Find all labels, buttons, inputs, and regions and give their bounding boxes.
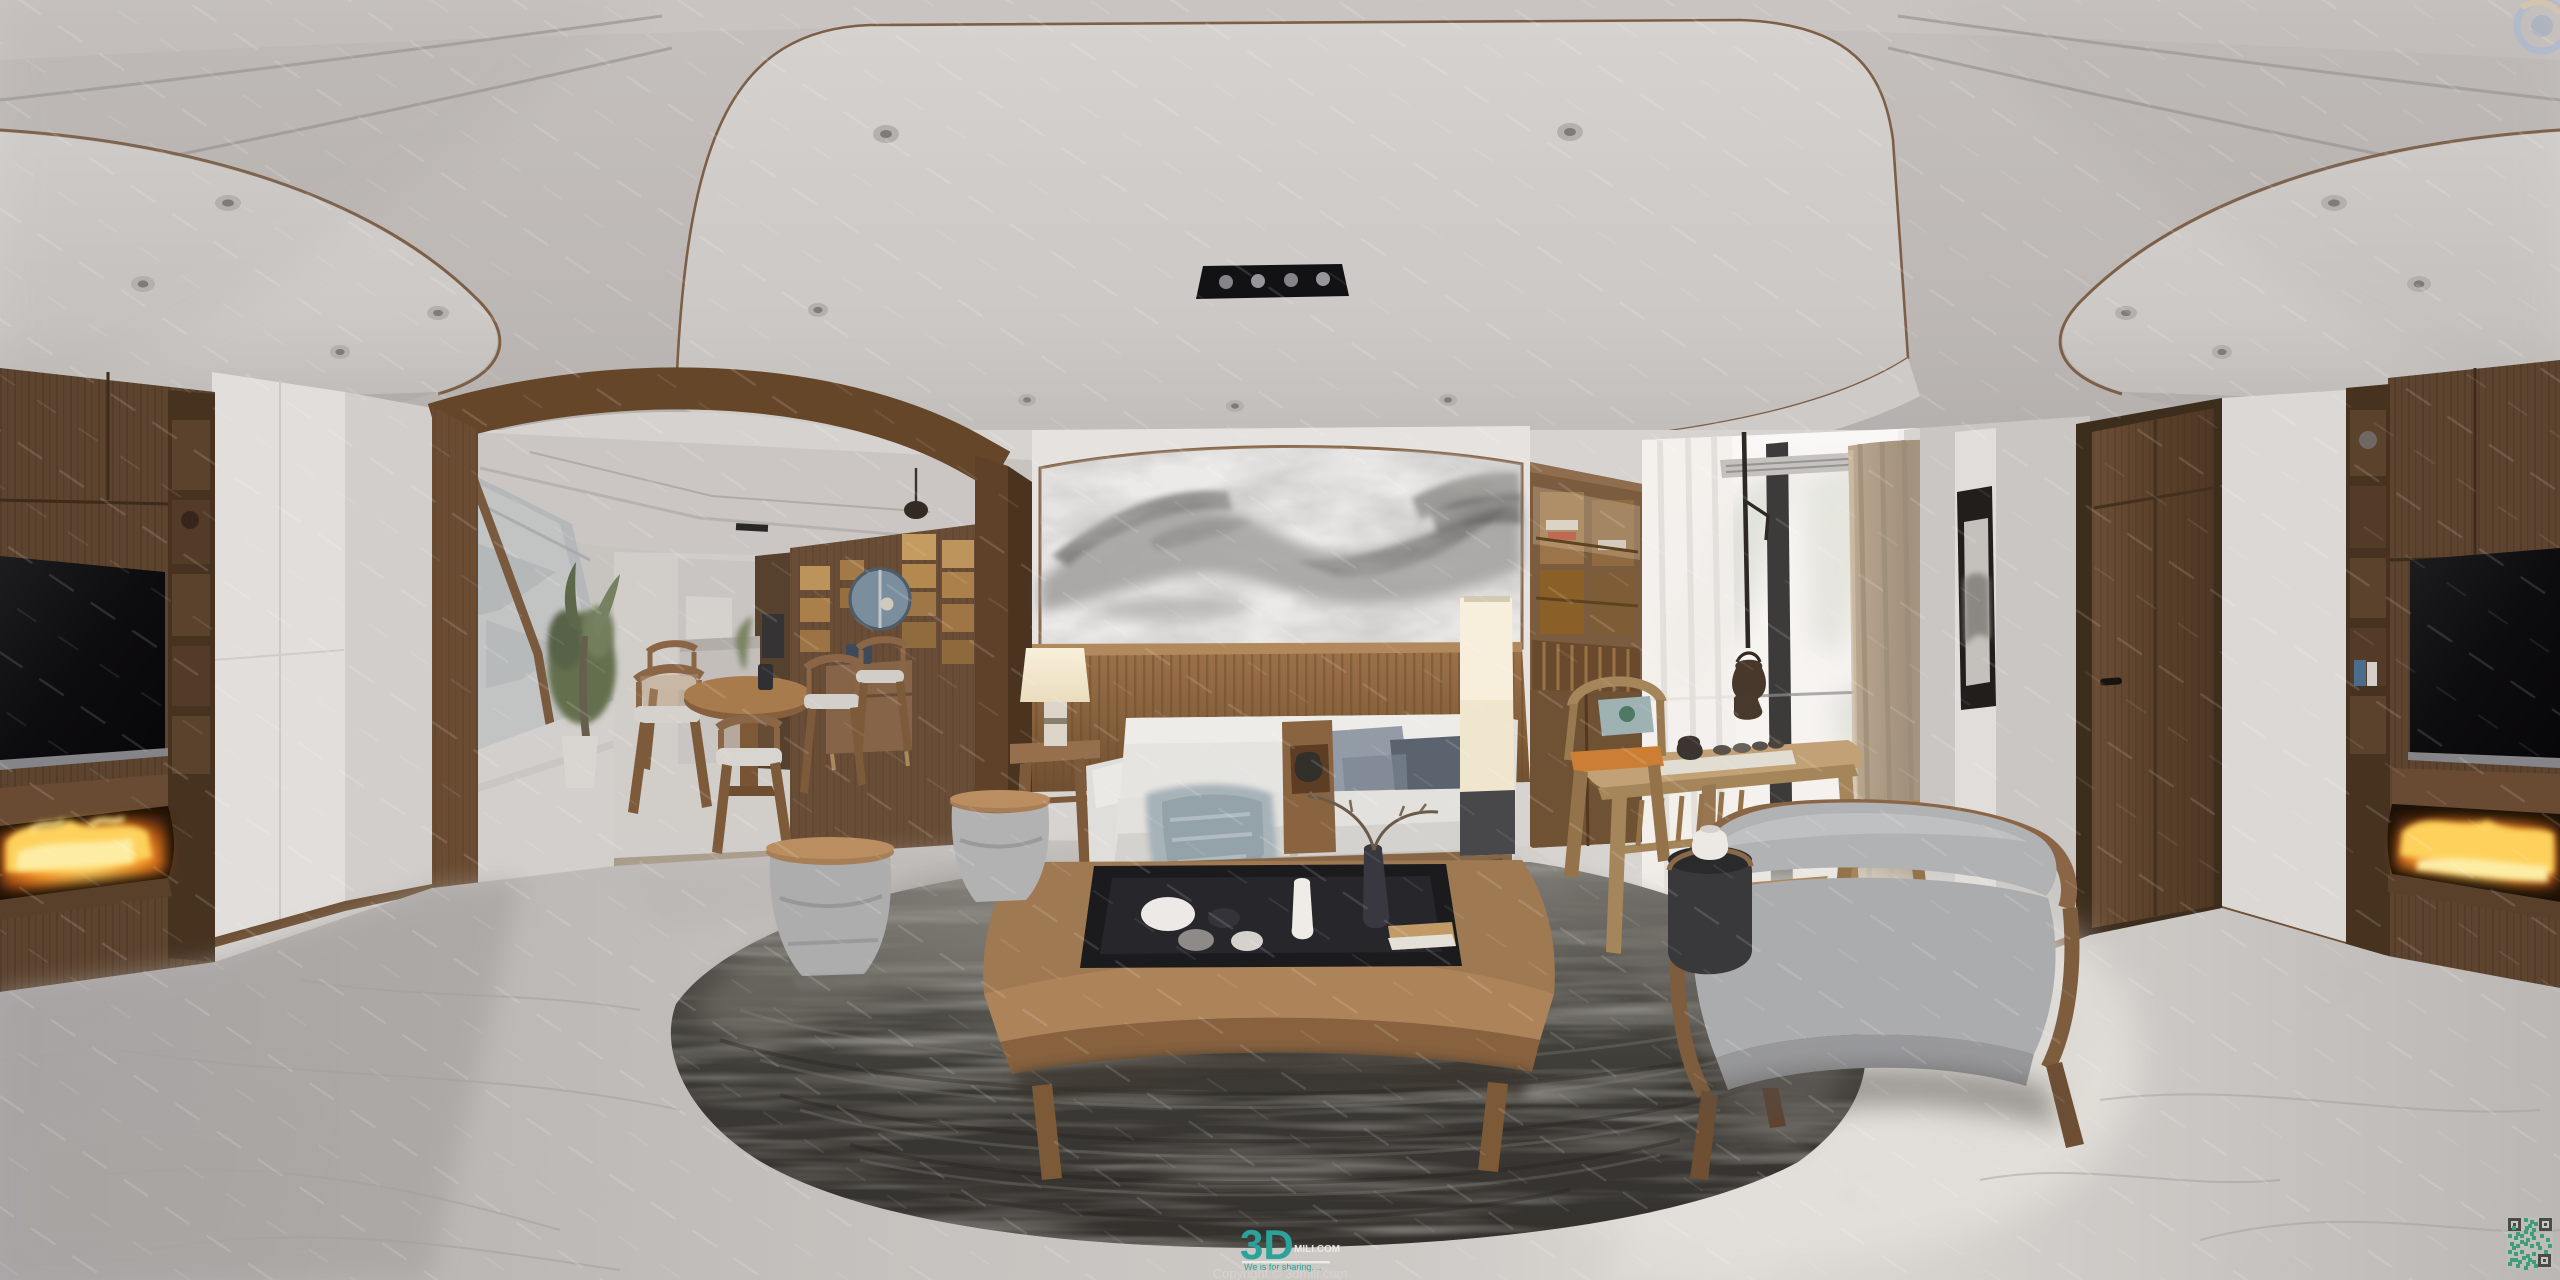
- svg-text:Copyright © 3dmili.com: Copyright © 3dmili.com: [1213, 1266, 1348, 1280]
- svg-text:3D: 3D: [1240, 1221, 1294, 1268]
- svg-text:MILI.COM: MILI.COM: [1294, 1244, 1340, 1255]
